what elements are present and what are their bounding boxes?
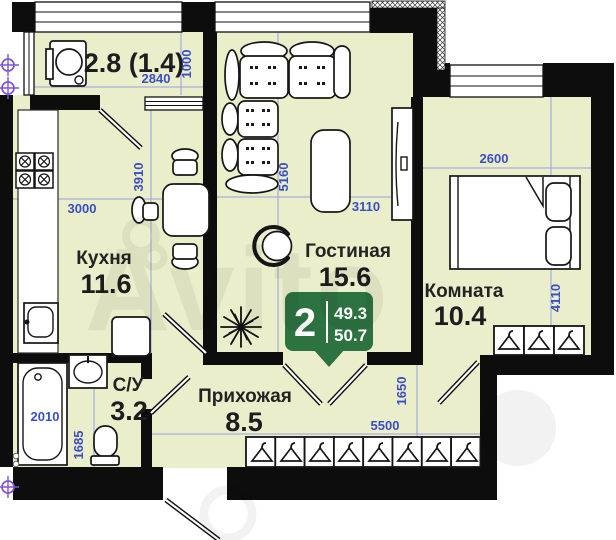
wall-top-step-horizontal: [370, 8, 437, 33]
dim-hallway-width: 5500: [371, 418, 400, 433]
dim-bedroom-width: 2600: [480, 151, 509, 166]
dim-living-height: 5160: [276, 163, 291, 192]
bathroom-area: 3.2: [110, 396, 148, 426]
wall-right: [591, 63, 614, 375]
dim-balcony-height: 1000: [179, 50, 194, 79]
dim-hallway-height: 1650: [394, 377, 409, 406]
coffee-table-icon: [311, 130, 350, 212]
wall-bottom-middle: [227, 467, 497, 500]
dim-kitchen-height: 3910: [131, 163, 146, 192]
dim-bathtub-length: 2010: [31, 409, 60, 424]
bedroom-area: 10.4: [434, 301, 487, 331]
floor-plan-image: 2.8 (1.4) 2840 1000 Кухня 11.6 3000 3910…: [0, 0, 616, 540]
bathroom-sink-icon: [69, 355, 107, 388]
wall-bottom-left: [13, 467, 163, 500]
tv-stand-icon: [392, 108, 413, 220]
wall-top-step-vertical: [413, 33, 437, 97]
dim-kitchen-width: 3000: [68, 201, 97, 216]
kitchen-balcony-window: [145, 97, 203, 110]
wall-balcony-bottom: [30, 95, 100, 110]
wall-left: [0, 95, 13, 467]
bed-icon: [450, 176, 580, 269]
balcony-window: [35, 2, 182, 32]
toilet-icon: [91, 426, 119, 465]
bedroom-wardrobe: [494, 326, 584, 355]
dim-bathroom-width: 1685: [71, 431, 86, 460]
floor-plan-svg: 2.8 (1.4) 2840 1000 Кухня 11.6 3000 3910…: [0, 0, 616, 540]
kitchen-sink-icon: [24, 303, 58, 343]
wall-top-left-block: [12, 2, 35, 32]
bedroom-label: Комната: [425, 281, 504, 302]
hallway-label: Прихожая: [198, 386, 292, 407]
hallway-wardrobe: [246, 437, 480, 467]
dim-bedroom-height: 4110: [548, 284, 563, 312]
wall-top-pier: [182, 2, 215, 32]
balcony-side-glazing: [24, 32, 34, 95]
dim-balcony-width: 2840: [142, 71, 171, 86]
bedroom-window: [450, 65, 543, 97]
living-room-window: [215, 2, 370, 32]
hallway-area: 8.5: [225, 407, 263, 437]
bathroom-label: С/У: [113, 375, 144, 396]
balcony-washbasin-icon: [46, 41, 86, 86]
stove-icon: [16, 153, 53, 188]
wall-top-right-corner: [543, 63, 591, 97]
dim-living-width: 3110: [352, 199, 380, 214]
